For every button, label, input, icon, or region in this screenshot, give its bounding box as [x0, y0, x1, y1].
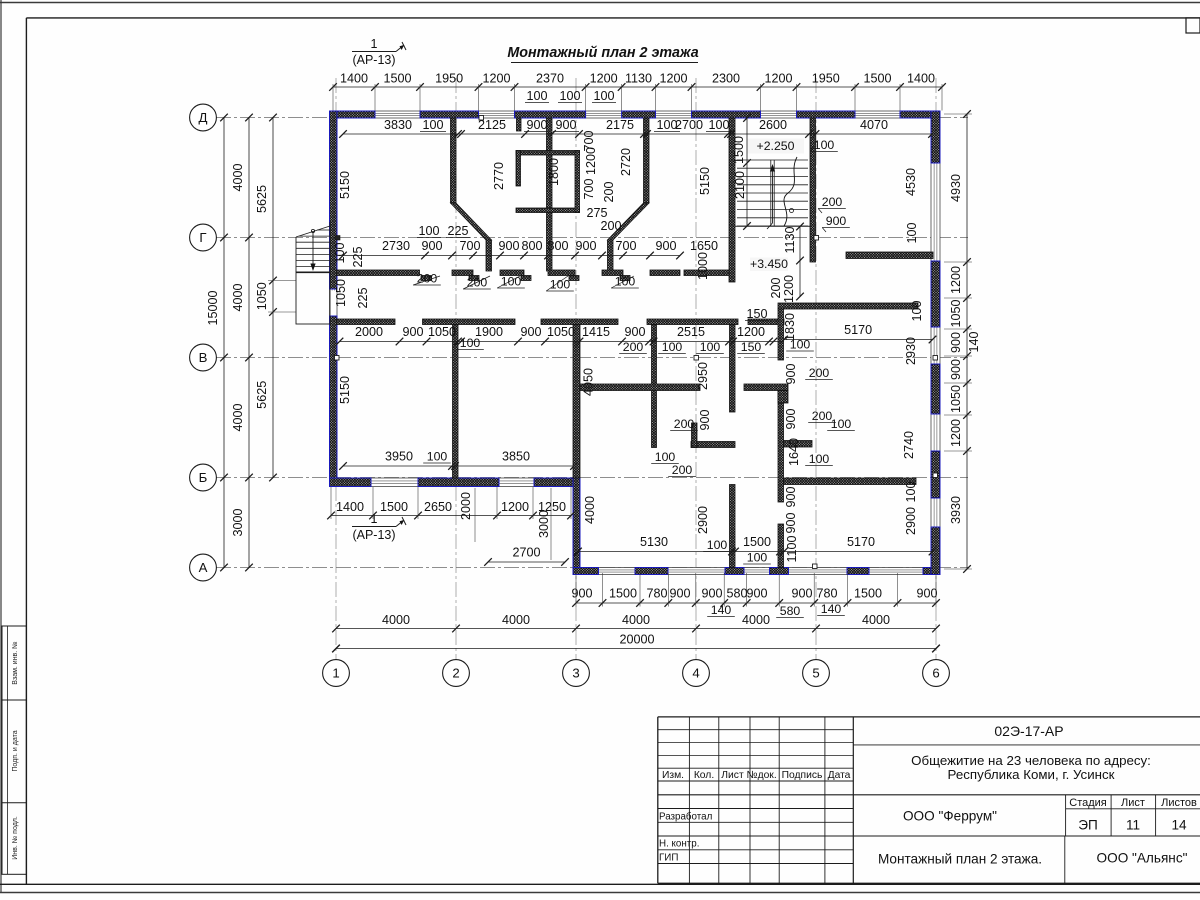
svg-text:100: 100 [700, 340, 721, 354]
svg-text:1950: 1950 [435, 72, 463, 86]
svg-text:1500: 1500 [609, 587, 637, 601]
svg-text:100: 100 [910, 300, 924, 321]
svg-text:1400: 1400 [340, 72, 368, 86]
svg-text:200: 200 [822, 195, 843, 209]
svg-text:200: 200 [809, 366, 830, 380]
svg-text:Лист №док.: Лист №док. [721, 770, 776, 781]
svg-text:2930: 2930 [904, 337, 918, 365]
svg-text:140: 140 [821, 602, 842, 616]
svg-text:4000: 4000 [231, 283, 245, 311]
svg-text:2720: 2720 [619, 148, 633, 176]
svg-text:1100: 1100 [785, 535, 799, 562]
svg-text:4930: 4930 [949, 174, 963, 202]
svg-text:1000: 1000 [696, 252, 710, 280]
svg-text:225: 225 [447, 224, 468, 238]
svg-text:100: 100 [427, 450, 448, 464]
svg-text:1400: 1400 [336, 500, 364, 514]
svg-text:900: 900 [784, 363, 798, 384]
svg-text:Разработал: Разработал [659, 812, 713, 823]
svg-text:+3.450: +3.450 [750, 257, 788, 271]
svg-text:Н. контр.: Н. контр. [659, 839, 699, 850]
svg-text:4: 4 [692, 666, 699, 681]
svg-text:1: 1 [332, 666, 339, 681]
svg-text:100: 100 [809, 452, 830, 466]
svg-text:1050: 1050 [949, 385, 963, 413]
svg-text:900: 900 [624, 325, 645, 339]
svg-text:4530: 4530 [904, 168, 918, 196]
svg-text:275: 275 [586, 206, 607, 220]
svg-text:1200: 1200 [584, 147, 598, 175]
svg-text:900: 900 [949, 332, 963, 353]
svg-text:100: 100 [460, 336, 481, 350]
svg-text:100: 100 [418, 224, 439, 238]
svg-text:100: 100 [593, 89, 614, 103]
svg-text:4000: 4000 [742, 613, 770, 627]
svg-text:Лист: Лист [1121, 797, 1145, 809]
svg-text:150: 150 [746, 307, 767, 321]
svg-text:3: 3 [572, 666, 579, 681]
svg-text:100: 100 [333, 242, 347, 263]
svg-text:2000: 2000 [355, 325, 383, 339]
svg-text:900: 900 [520, 325, 541, 339]
svg-text:2100: 2100 [733, 171, 747, 199]
svg-text:900: 900 [571, 587, 592, 601]
svg-text:Взам. инв. №: Взам. инв. № [12, 641, 19, 684]
svg-text:3950: 3950 [385, 450, 413, 464]
svg-text:5130: 5130 [640, 535, 668, 549]
svg-text:800: 800 [547, 239, 568, 253]
svg-text:2370: 2370 [536, 72, 564, 86]
svg-text:900: 900 [498, 239, 519, 253]
svg-text:15000: 15000 [206, 290, 220, 325]
svg-text:100: 100 [550, 278, 571, 292]
svg-text:ООО "Альянс": ООО "Альянс" [1097, 851, 1188, 866]
svg-text:1800: 1800 [547, 158, 561, 186]
svg-text:2730: 2730 [382, 239, 410, 253]
svg-text:4000: 4000 [862, 613, 890, 627]
svg-text:1500: 1500 [380, 500, 408, 514]
svg-text:900: 900 [746, 587, 767, 601]
svg-text:3830: 3830 [384, 118, 412, 132]
svg-text:+2.250: +2.250 [757, 139, 795, 153]
svg-text:580: 580 [726, 587, 747, 601]
svg-text:2600: 2600 [759, 118, 787, 132]
svg-text:1200: 1200 [764, 72, 792, 86]
svg-text:100: 100 [559, 89, 580, 103]
svg-text:900: 900 [669, 587, 690, 601]
svg-text:1500: 1500 [383, 72, 411, 86]
svg-text:1400: 1400 [907, 72, 935, 86]
svg-text:900: 900 [916, 587, 937, 601]
svg-text:1830: 1830 [783, 313, 797, 341]
svg-text:4050: 4050 [582, 368, 596, 396]
svg-text:Изм.: Изм. [662, 770, 684, 781]
svg-text:Монтажный план 2 этажа: Монтажный план 2 этажа [507, 45, 698, 61]
svg-text:780: 780 [816, 587, 837, 601]
svg-text:1500: 1500 [854, 587, 882, 601]
svg-text:780: 780 [646, 587, 667, 601]
svg-text:1050: 1050 [334, 279, 348, 307]
svg-text:100: 100 [526, 89, 547, 103]
svg-text:ГИП: ГИП [659, 853, 678, 864]
svg-text:2900: 2900 [696, 506, 710, 534]
svg-text:(АР-13): (АР-13) [352, 528, 395, 542]
svg-text:Б: Б [199, 470, 208, 485]
svg-text:900: 900 [698, 409, 712, 430]
svg-text:ООО "Феррум": ООО "Феррум" [903, 809, 997, 824]
svg-text:11: 11 [1126, 818, 1140, 833]
svg-text:200: 200 [672, 463, 693, 477]
svg-text:Подп. и дата: Подп. и дата [12, 730, 19, 771]
svg-text:100: 100 [708, 118, 729, 132]
svg-text:225: 225 [356, 287, 370, 308]
svg-text:1640: 1640 [787, 438, 801, 466]
svg-text:2: 2 [452, 666, 459, 681]
svg-text:100: 100 [905, 222, 919, 243]
svg-text:1200: 1200 [782, 275, 796, 303]
svg-text:4000: 4000 [382, 613, 410, 627]
svg-text:1500: 1500 [732, 136, 746, 164]
svg-text:2000: 2000 [459, 492, 473, 520]
svg-text:А: А [199, 560, 208, 575]
svg-text:3000: 3000 [537, 510, 551, 538]
svg-text:900: 900 [655, 239, 676, 253]
svg-text:900: 900 [784, 512, 798, 533]
svg-text:4000: 4000 [622, 613, 650, 627]
svg-text:4000: 4000 [231, 403, 245, 431]
svg-text:5: 5 [812, 666, 819, 681]
svg-text:200: 200 [602, 181, 616, 202]
svg-text:(АР-13): (АР-13) [352, 53, 395, 67]
svg-text:200: 200 [417, 272, 438, 286]
svg-text:900: 900 [575, 239, 596, 253]
svg-text:1130: 1130 [783, 226, 797, 253]
svg-text:2900: 2900 [904, 507, 918, 535]
svg-text:2515: 2515 [677, 325, 705, 339]
svg-text:900: 900 [555, 118, 576, 132]
svg-text:1200: 1200 [737, 325, 765, 339]
svg-text:1: 1 [371, 37, 378, 51]
svg-text:900: 900 [421, 239, 442, 253]
svg-text:3000: 3000 [231, 508, 245, 536]
svg-text:200: 200 [812, 409, 833, 423]
svg-text:Подпись: Подпись [782, 770, 823, 781]
svg-text:1050: 1050 [428, 325, 456, 339]
svg-text:Г: Г [199, 230, 206, 245]
svg-text:1200: 1200 [501, 500, 529, 514]
svg-text:225: 225 [351, 246, 365, 267]
svg-text:150: 150 [741, 340, 762, 354]
svg-text:4000: 4000 [231, 163, 245, 191]
svg-text:2650: 2650 [424, 500, 452, 514]
svg-text:140: 140 [711, 603, 732, 617]
svg-text:200: 200 [769, 277, 783, 298]
svg-text:Республика Коми, г. Усинск: Республика Коми, г. Усинск [948, 767, 1115, 782]
svg-text:1500: 1500 [743, 535, 771, 549]
svg-text:100: 100 [707, 538, 728, 552]
svg-text:700: 700 [615, 239, 636, 253]
svg-text:100: 100 [904, 481, 918, 502]
svg-text:Общежитие на 23 человека по ад: Общежитие на 23 человека по адресу: [911, 753, 1151, 768]
svg-text:2770: 2770 [492, 162, 506, 190]
svg-text:4000: 4000 [583, 496, 597, 524]
svg-text:900: 900 [791, 587, 812, 601]
svg-text:700: 700 [459, 239, 480, 253]
svg-text:2300: 2300 [712, 72, 740, 86]
svg-text:1130: 1130 [625, 72, 652, 86]
svg-text:1050: 1050 [255, 282, 269, 310]
svg-text:100: 100 [831, 417, 852, 431]
svg-text:100: 100 [422, 118, 443, 132]
svg-text:2950: 2950 [696, 362, 710, 390]
svg-text:1650: 1650 [690, 239, 718, 253]
svg-text:1200: 1200 [659, 72, 687, 86]
svg-text:Кол.: Кол. [694, 770, 714, 781]
svg-text:100: 100 [814, 138, 835, 152]
svg-text:900: 900 [526, 118, 547, 132]
svg-text:140: 140 [967, 331, 981, 352]
svg-text:5625: 5625 [255, 185, 269, 213]
svg-text:2700: 2700 [512, 546, 540, 560]
svg-text:4000: 4000 [502, 613, 530, 627]
svg-text:900: 900 [949, 359, 963, 380]
svg-text:1200: 1200 [482, 72, 510, 86]
svg-text:200: 200 [623, 340, 644, 354]
svg-text:100: 100 [655, 450, 676, 464]
svg-text:900: 900 [701, 587, 722, 601]
svg-text:ЭП: ЭП [1078, 818, 1098, 833]
svg-text:1050: 1050 [547, 325, 575, 339]
svg-text:100: 100 [662, 340, 683, 354]
svg-text:900: 900 [784, 408, 798, 429]
svg-text:900: 900 [402, 325, 423, 339]
svg-text:6: 6 [932, 666, 939, 681]
svg-text:Дата: Дата [828, 770, 851, 781]
svg-text:Монтажный план 2 этажа.: Монтажный план 2 этажа. [878, 852, 1042, 867]
svg-text:Инв. № подл.: Инв. № подл. [12, 816, 19, 860]
svg-text:2740: 2740 [902, 431, 916, 459]
svg-text:900: 900 [826, 214, 847, 228]
svg-text:5150: 5150 [338, 376, 352, 404]
svg-text:2125: 2125 [478, 118, 506, 132]
svg-text:5150: 5150 [698, 167, 712, 195]
svg-text:Д: Д [199, 110, 208, 125]
svg-text:1050: 1050 [949, 299, 963, 327]
svg-text:200: 200 [600, 219, 621, 233]
svg-text:700: 700 [582, 178, 596, 199]
svg-text:5170: 5170 [847, 535, 875, 549]
svg-text:02Э-17-АР: 02Э-17-АР [994, 723, 1063, 739]
svg-text:1200: 1200 [949, 266, 963, 294]
svg-text:2700: 2700 [675, 118, 703, 132]
svg-text:1200: 1200 [949, 419, 963, 447]
svg-text:4070: 4070 [860, 118, 888, 132]
svg-text:1200: 1200 [590, 72, 618, 86]
svg-text:20000: 20000 [619, 633, 654, 647]
svg-text:1950: 1950 [812, 72, 840, 86]
svg-text:Листов: Листов [1161, 797, 1197, 809]
svg-text:580: 580 [780, 604, 801, 618]
svg-text:14: 14 [1171, 818, 1187, 833]
svg-text:3850: 3850 [502, 450, 530, 464]
svg-text:Стадия: Стадия [1069, 797, 1107, 809]
svg-text:200: 200 [674, 417, 695, 431]
svg-text:100: 100 [747, 551, 768, 565]
svg-text:2175: 2175 [606, 118, 634, 132]
svg-text:5150: 5150 [338, 171, 352, 199]
svg-text:1415: 1415 [582, 325, 610, 339]
svg-text:В: В [199, 350, 208, 365]
svg-text:900: 900 [784, 486, 798, 507]
svg-text:800: 800 [521, 239, 542, 253]
svg-text:3930: 3930 [949, 496, 963, 524]
svg-text:5170: 5170 [844, 323, 872, 337]
svg-text:1500: 1500 [863, 72, 891, 86]
svg-text:5625: 5625 [255, 381, 269, 409]
